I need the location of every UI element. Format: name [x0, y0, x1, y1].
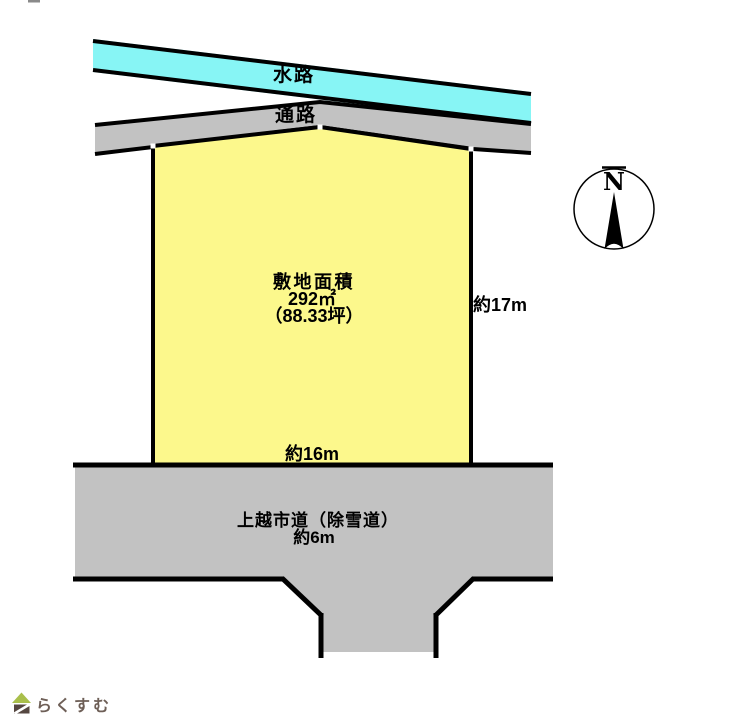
road-width-dimension: 約6m	[293, 527, 335, 547]
house-roof	[12, 693, 31, 704]
vertex-marker	[469, 147, 474, 152]
vertex-marker	[318, 125, 323, 130]
plot-frontage-dimension: 約16m	[285, 443, 339, 464]
compass-north-label: N	[603, 167, 625, 196]
house-icon	[12, 693, 31, 714]
waterway-label: 水路	[273, 63, 315, 86]
plot-depth-dimension: 約17m	[473, 294, 527, 315]
road-shape	[75, 465, 553, 652]
compass: N	[574, 167, 654, 249]
plot-area-tsubo: （88.33坪）	[264, 306, 363, 326]
road: 上越市道（除雪道） 約6m	[73, 465, 553, 658]
land-plot: 敷地面積 292㎡ （88.33坪） 約16m 約17m	[151, 125, 528, 468]
road-name: 上越市道（除雪道）	[237, 510, 399, 530]
passage-label: 通路	[275, 103, 317, 126]
vertex-marker	[151, 144, 156, 149]
land-plot-diagram-page: 水路 通路 敷地面積 292㎡ （88.33坪） 約16m 約17m	[0, 0, 748, 718]
logo: らくすむ	[12, 693, 112, 716]
top-edge-artifact	[28, 0, 40, 3]
logo-text: らくすむ	[36, 697, 112, 715]
land-plot-diagram: 水路 通路 敷地面積 292㎡ （88.33坪） 約16m 約17m	[0, 0, 748, 718]
